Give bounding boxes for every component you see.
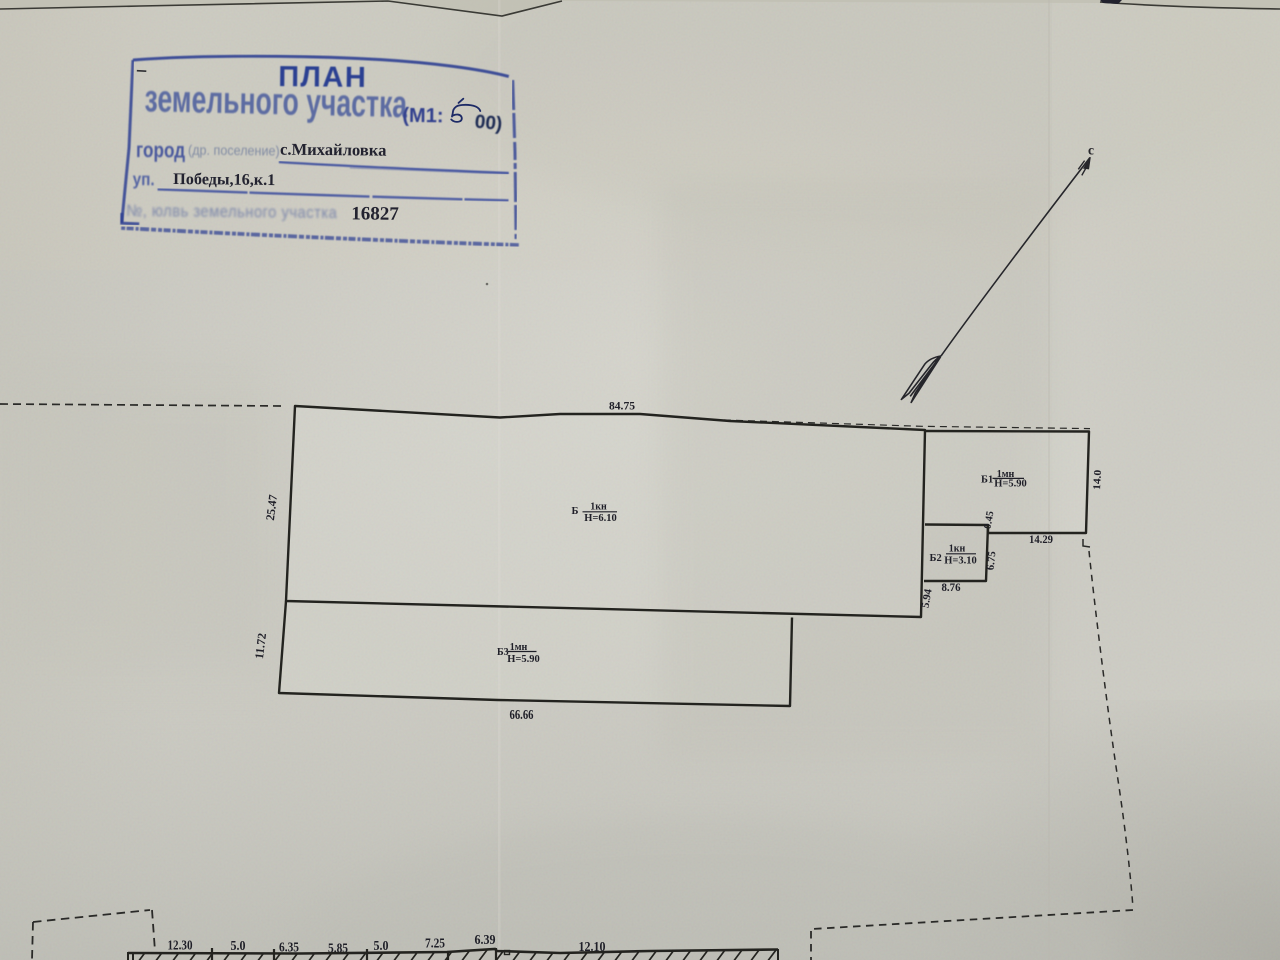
svg-text:(др. поселение): (др. поселение) <box>188 142 280 159</box>
svg-text:12.30: 12.30 <box>168 938 193 953</box>
svg-text:00): 00) <box>474 112 503 136</box>
svg-text:66.66: 66.66 <box>510 708 534 723</box>
svg-text:с: с <box>1088 143 1094 158</box>
svg-text:город: город <box>136 140 185 163</box>
svg-text:Б: Б <box>572 506 579 517</box>
svg-text:Б2: Б2 <box>930 553 942 564</box>
svg-text:7.25: 7.25 <box>425 936 445 951</box>
svg-text:14.0: 14.0 <box>1092 470 1104 491</box>
svg-text:14.29: 14.29 <box>1029 532 1053 546</box>
svg-text:5.0: 5.0 <box>231 938 246 953</box>
svg-text:№, юлвь земельного участка: №, юлвь земельного участка <box>126 202 337 222</box>
svg-text:6.75: 6.75 <box>985 550 999 571</box>
svg-text:5.0: 5.0 <box>374 938 389 953</box>
svg-text:6.39: 6.39 <box>475 932 496 947</box>
svg-text:Н=5.90: Н=5.90 <box>507 654 540 665</box>
svg-text:Н=3.10: Н=3.10 <box>944 555 977 566</box>
svg-text:(М1:: (М1: <box>402 105 443 127</box>
svg-text:уп.: уп. <box>133 169 155 190</box>
svg-text:Н=6.10: Н=6.10 <box>584 513 617 524</box>
svg-text:1кн: 1кн <box>590 501 607 512</box>
svg-text:земельного участка: земельного участка <box>144 76 408 125</box>
svg-text:Победы,16,к.1: Победы,16,к.1 <box>173 170 275 189</box>
svg-text:с.Михайловка: с.Михайловка <box>280 140 387 160</box>
svg-text:16827: 16827 <box>351 203 399 225</box>
svg-text:Б1: Б1 <box>981 475 993 486</box>
svg-text:84.75: 84.75 <box>609 399 635 413</box>
svg-text:1кн: 1кн <box>949 544 966 555</box>
svg-text:Н=5.90: Н=5.90 <box>994 479 1027 490</box>
svg-text:8.76: 8.76 <box>942 580 961 594</box>
